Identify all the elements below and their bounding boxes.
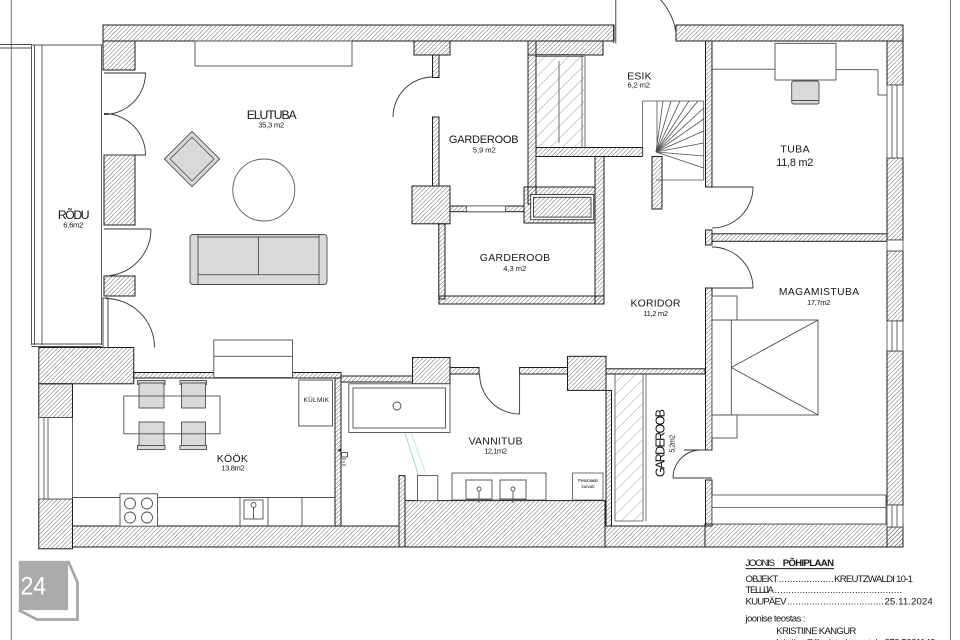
svg-text:JOONIS: JOONIS [746,558,776,569]
svg-text:MAGAMISTUBA: MAGAMISTUBA [779,287,859,298]
svg-text:5,9 m2: 5,9 m2 [473,146,496,155]
svg-text:..............................: ........................................… [775,585,903,596]
svg-text:joonise teostas :: joonise teostas : [745,613,806,624]
svg-text:KORIDOR: KORIDOR [631,298,681,310]
svg-text:25.11.2024: 25.11.2024 [885,597,934,608]
svg-text:GARDEROOB: GARDEROOB [480,253,550,264]
svg-text:..............................: ................................... [787,597,884,608]
svg-text:17,7m2: 17,7m2 [807,298,830,307]
svg-text:24: 24 [21,573,47,601]
svg-text:GARDEROOB: GARDEROOB [449,134,519,146]
svg-text:kuivati: kuivati [582,484,595,489]
svg-text:4,3 m2: 4,3 m2 [503,264,526,273]
svg-text:6,2 m2: 6,2 m2 [628,81,651,90]
svg-text:TUBA: TUBA [780,144,809,156]
svg-text:KRISTIINE KANGUR: KRISTIINE KANGUR [776,626,856,637]
svg-text:....................: .................... [779,574,834,585]
svg-text:KUUPÄEV: KUUPÄEV [746,597,788,608]
svg-text:11,2 m2: 11,2 m2 [643,309,668,318]
svg-text:Pesumasin: Pesumasin [578,478,598,483]
svg-text:12,1m2: 12,1m2 [484,446,507,455]
svg-text:PÕHIPLAAN: PÕHIPLAAN [783,558,834,569]
svg-text:OBJEKT: OBJEKT [746,574,779,585]
svg-text:13,8m2: 13,8m2 [221,464,244,473]
svg-text:6,6m2: 6,6m2 [63,221,83,230]
svg-text:11,8 m2: 11,8 m2 [776,157,813,169]
svg-text:GARDEROOB: GARDEROOB [654,409,668,477]
svg-text:35,3 m2: 35,3 m2 [258,121,284,130]
svg-text:5,2m2: 5,2m2 [670,435,677,453]
svg-text:TELLIJA: TELLIJA [746,585,775,596]
svg-text:KÜLMIK: KÜLMIK [304,396,330,404]
svg-text:KREUTZWALDI 10-1: KREUTZWALDI 10-1 [834,574,913,585]
